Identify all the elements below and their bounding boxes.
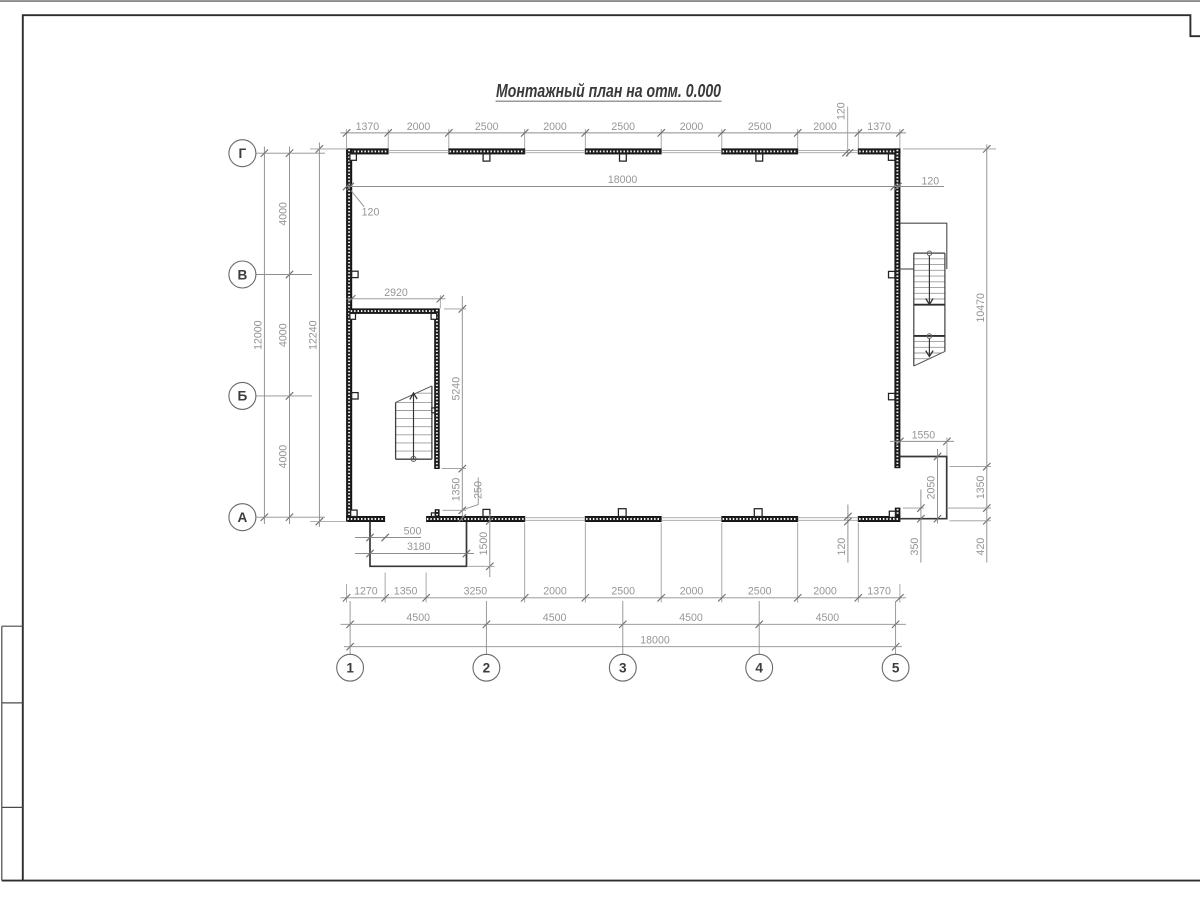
svg-text:12000: 12000 [252, 320, 264, 350]
svg-text:4500: 4500 [543, 612, 567, 624]
svg-text:5: 5 [892, 661, 900, 676]
svg-text:3180: 3180 [407, 541, 431, 553]
svg-text:4500: 4500 [816, 612, 840, 624]
svg-text:2050: 2050 [926, 476, 938, 500]
svg-text:120: 120 [836, 102, 848, 120]
svg-text:120: 120 [362, 206, 380, 218]
svg-text:2500: 2500 [748, 586, 772, 598]
svg-text:4500: 4500 [406, 612, 430, 624]
svg-text:1350: 1350 [975, 476, 987, 500]
svg-text:3: 3 [619, 661, 627, 676]
svg-text:А: А [237, 510, 247, 525]
svg-text:2000: 2000 [813, 121, 837, 133]
svg-text:1270: 1270 [354, 586, 378, 598]
svg-text:5240: 5240 [450, 377, 462, 401]
svg-text:120: 120 [921, 175, 939, 187]
svg-text:10470: 10470 [975, 293, 987, 323]
svg-text:4000: 4000 [278, 445, 290, 469]
svg-text:4: 4 [755, 661, 763, 676]
svg-text:2500: 2500 [611, 121, 635, 133]
svg-text:12240: 12240 [307, 320, 319, 350]
svg-text:1370: 1370 [867, 121, 891, 133]
svg-text:2: 2 [483, 661, 491, 676]
svg-text:2000: 2000 [680, 121, 704, 133]
svg-text:350: 350 [909, 538, 921, 556]
svg-text:1500: 1500 [478, 532, 490, 556]
svg-text:2000: 2000 [407, 121, 431, 133]
svg-text:4000: 4000 [278, 323, 290, 347]
svg-text:В: В [237, 267, 247, 282]
svg-text:1350: 1350 [394, 586, 418, 598]
svg-text:Б: Б [238, 389, 248, 404]
svg-text:2500: 2500 [475, 121, 499, 133]
svg-text:1: 1 [346, 661, 354, 676]
svg-text:2500: 2500 [748, 121, 772, 133]
svg-text:2000: 2000 [543, 121, 567, 133]
svg-text:1370: 1370 [867, 586, 891, 598]
svg-text:1350: 1350 [450, 478, 462, 502]
svg-text:18000: 18000 [640, 635, 670, 647]
svg-text:2920: 2920 [384, 287, 408, 299]
svg-text:2000: 2000 [813, 586, 837, 598]
svg-text:1550: 1550 [912, 430, 936, 442]
svg-text:2000: 2000 [543, 586, 567, 598]
svg-text:1370: 1370 [356, 121, 380, 133]
svg-text:500: 500 [404, 526, 422, 538]
svg-text:3250: 3250 [464, 586, 488, 598]
svg-text:4500: 4500 [679, 612, 703, 624]
svg-text:Монтажный план на отм. 0.000: Монтажный план на отм. 0.000 [496, 81, 721, 101]
svg-text:250: 250 [473, 481, 485, 499]
svg-text:420: 420 [975, 538, 987, 556]
svg-text:Г: Г [239, 146, 247, 161]
svg-text:18000: 18000 [608, 174, 638, 186]
svg-text:2500: 2500 [611, 586, 635, 598]
svg-text:2000: 2000 [680, 586, 704, 598]
svg-text:120: 120 [836, 538, 848, 556]
svg-text:4000: 4000 [278, 202, 290, 226]
